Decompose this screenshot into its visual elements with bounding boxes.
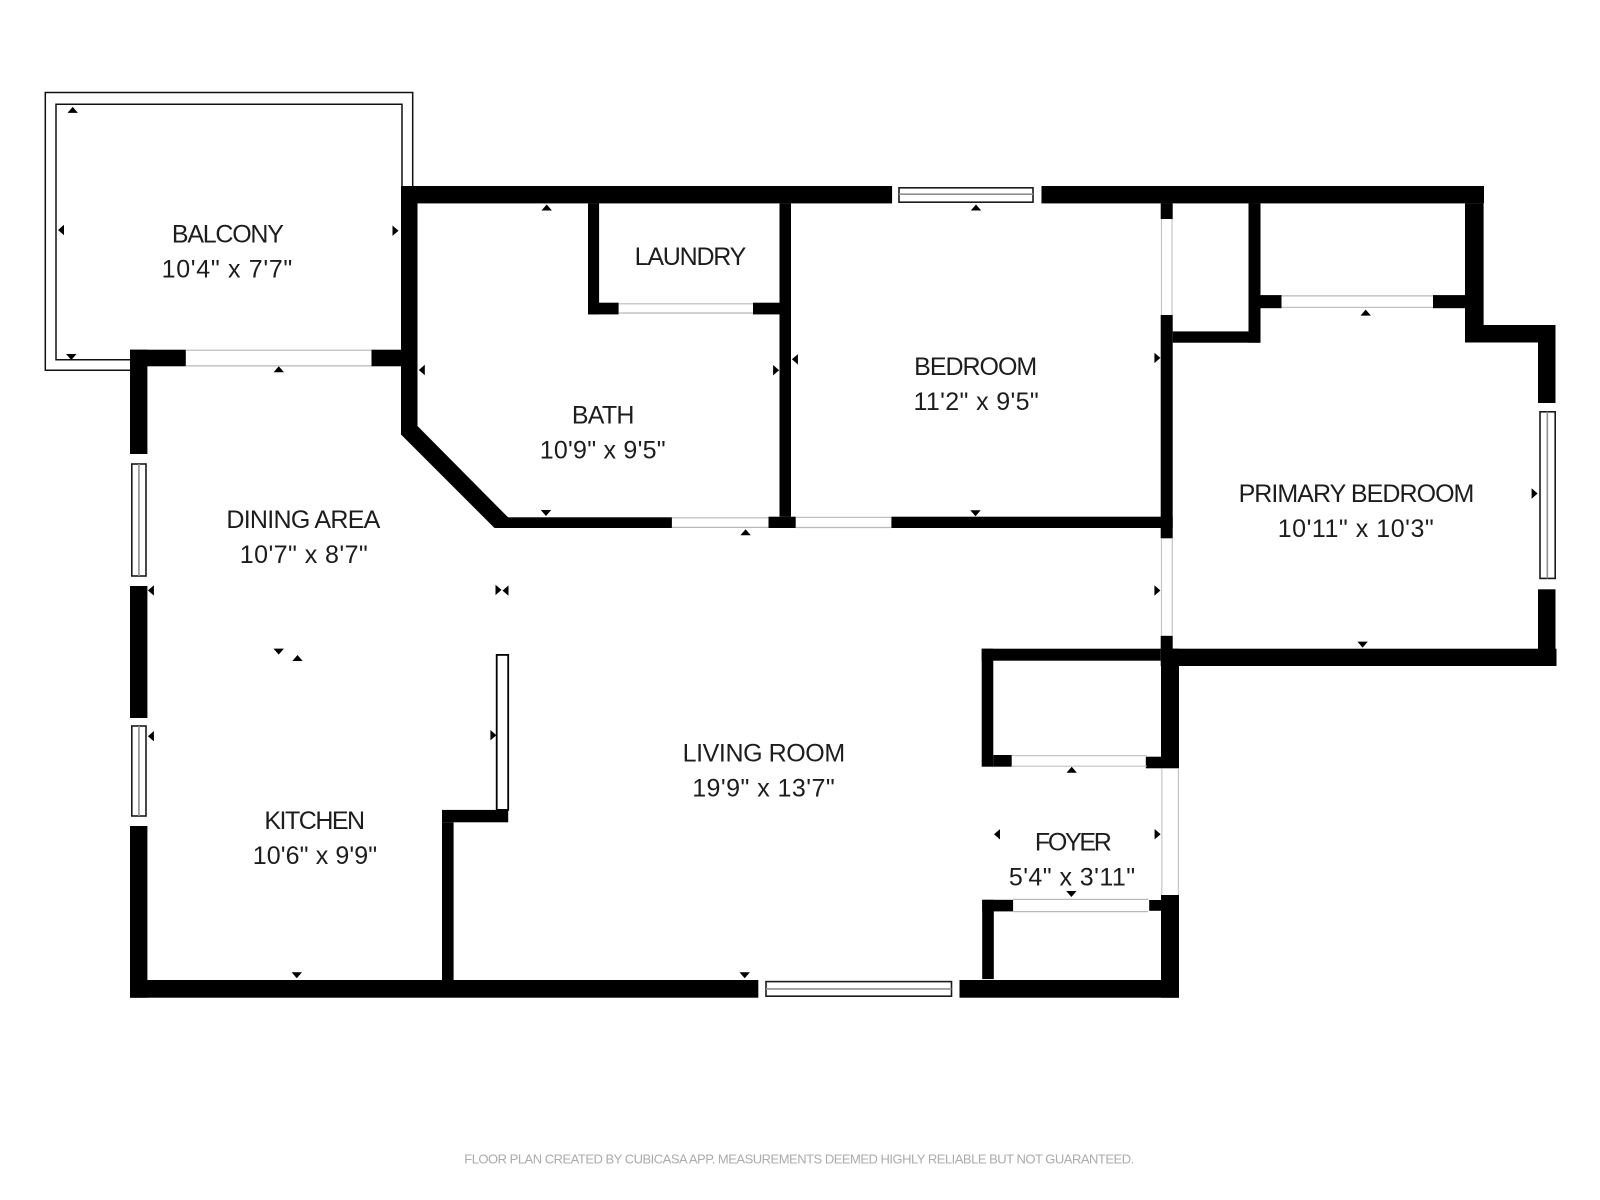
svg-text:LAUNDRY: LAUNDRY <box>635 243 747 271</box>
svg-text:BATH: BATH <box>572 402 634 430</box>
svg-text:BEDROOM: BEDROOM <box>914 353 1036 381</box>
svg-text:10'11" x 10'3": 10'11" x 10'3" <box>1278 515 1435 543</box>
svg-text:DINING AREA: DINING AREA <box>226 506 380 534</box>
svg-text:LIVING ROOM: LIVING ROOM <box>683 740 845 768</box>
svg-text:5'4" x 3'11": 5'4" x 3'11" <box>1009 863 1136 891</box>
svg-text:19'9" x 13'7": 19'9" x 13'7" <box>692 775 835 803</box>
svg-text:PRIMARY BEDROOM: PRIMARY BEDROOM <box>1239 480 1474 508</box>
svg-text:BALCONY: BALCONY <box>172 221 284 249</box>
svg-text:FOYER: FOYER <box>1035 828 1111 856</box>
svg-text:10'4" x 7'7": 10'4" x 7'7" <box>162 256 293 284</box>
svg-text:KITCHEN: KITCHEN <box>264 807 364 835</box>
svg-text:10'6" x 9'9": 10'6" x 9'9" <box>253 842 378 870</box>
svg-text:10'9" x 9'5": 10'9" x 9'5" <box>540 437 666 465</box>
svg-text:11'2" x 9'5": 11'2" x 9'5" <box>914 388 1040 416</box>
svg-text:FLOOR PLAN CREATED BY CUBICASA: FLOOR PLAN CREATED BY CUBICASA APP. MEAS… <box>464 1152 1133 1167</box>
svg-text:10'7" x 8'7": 10'7" x 8'7" <box>240 541 369 569</box>
